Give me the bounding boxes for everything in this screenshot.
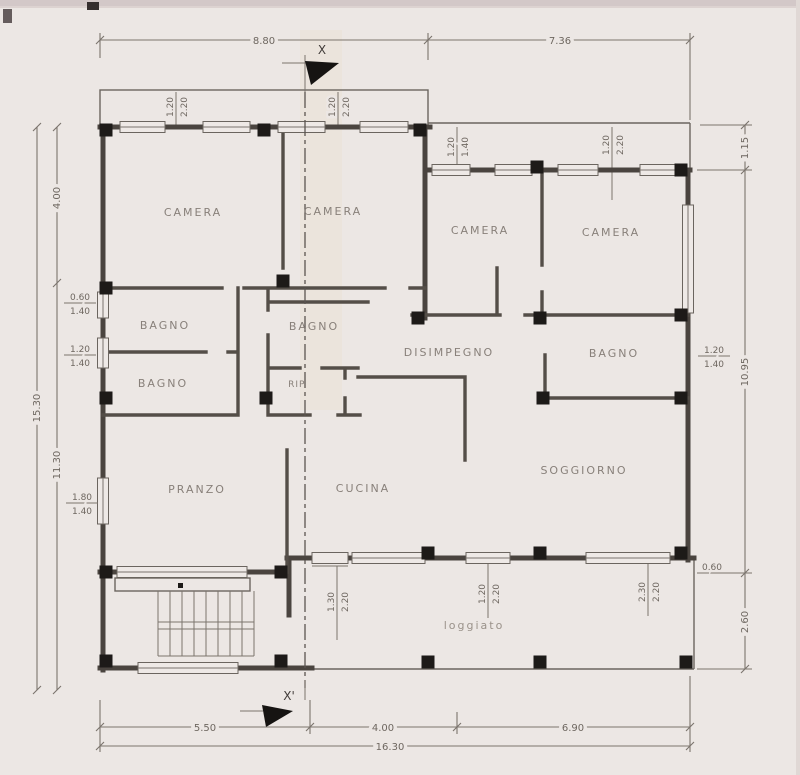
column xyxy=(100,655,113,668)
column xyxy=(422,547,435,560)
opening-height: 2.20 xyxy=(492,584,502,604)
room-label-bagno-mid: BAGNO xyxy=(289,320,339,333)
column xyxy=(534,547,547,560)
dim-right-loggia-width: 0.60 xyxy=(702,563,722,573)
scan-corner-mark xyxy=(3,9,12,23)
dimension-lines: 8.80 7.36 15.30 4.00 11.30 1.15 10.95 2.… xyxy=(32,33,752,753)
stair-treads xyxy=(158,591,254,656)
column xyxy=(534,656,547,669)
opening-width: 1.20 xyxy=(478,584,488,604)
staircase xyxy=(115,578,254,656)
opening-label-entry-door: 1.30 2.20 xyxy=(327,588,351,616)
dim-left-lower: 11.30 xyxy=(52,451,63,480)
dim-right-loggia-height: 2.60 xyxy=(740,611,751,633)
opening-height: 1.40 xyxy=(70,359,90,369)
opening-width: 1.20 xyxy=(166,97,176,117)
loggia-edge xyxy=(312,558,694,669)
room-label-camera-ne-left: CAMERA xyxy=(451,224,509,237)
opening-width: 1.30 xyxy=(327,592,337,612)
balcony-terrace-outlines xyxy=(100,90,694,669)
section-label-bottom: X' xyxy=(283,689,295,703)
column xyxy=(100,124,113,137)
opening-label-south-1: 1.20 2.20 xyxy=(478,580,502,608)
room-label-cucina: CUCINA xyxy=(336,482,390,495)
opening-label-left-3: 1.80 1.40 xyxy=(66,493,98,517)
dim-top-left: 8.80 xyxy=(253,36,275,47)
opening-label-south-2: 2.30 2.20 xyxy=(638,578,662,606)
column xyxy=(277,275,290,288)
dim-right-main: 10.95 xyxy=(740,358,751,387)
opening-width: 1.20 xyxy=(328,97,338,117)
opening-width: 1.20 xyxy=(70,345,90,355)
opening-label-terrace-2: 1.20 2.20 xyxy=(602,131,626,159)
column xyxy=(537,392,550,405)
scan-top-band-soft xyxy=(0,6,800,8)
dim-lines-bottom xyxy=(100,676,690,752)
opening-height: 1.40 xyxy=(72,507,92,517)
opening-width: 2.30 xyxy=(638,582,648,602)
stair-dot xyxy=(178,583,183,588)
room-label-bagno-e: BAGNO xyxy=(589,347,639,360)
room-label-disimpegno: DISIMPEGNO xyxy=(404,346,494,359)
scan-right-edge xyxy=(796,0,800,775)
room-label-loggiato: loggiato xyxy=(444,619,505,632)
room-label-camera-nw: CAMERA xyxy=(164,206,222,219)
column xyxy=(422,656,435,669)
column xyxy=(534,312,547,325)
dim-bottom-total: 16.30 xyxy=(376,742,405,753)
opening-height: 1.40 xyxy=(461,137,471,157)
opening-label-right-1: 1.20 1.40 xyxy=(698,346,730,370)
dim-top-right: 7.36 xyxy=(549,36,571,47)
room-label-soggiorno: SOGGIORNO xyxy=(540,464,627,477)
opening-height: 2.20 xyxy=(342,97,352,117)
room-label-camera-ne-right: CAMERA xyxy=(582,226,640,239)
column xyxy=(100,392,113,405)
opening-label-left-2: 1.20 1.40 xyxy=(64,345,96,369)
column xyxy=(275,655,288,668)
column xyxy=(680,656,693,669)
column xyxy=(414,124,427,137)
entry-door-opening xyxy=(312,553,348,564)
dim-left-upper: 4.00 xyxy=(52,187,63,209)
opening-width: 1.20 xyxy=(602,135,612,155)
opening-width: 1.80 xyxy=(72,493,92,503)
opening-label-balcony-1: 1.20 2.20 xyxy=(166,93,190,121)
opening-height: 1.40 xyxy=(70,307,90,317)
column xyxy=(258,124,271,137)
opening-width: 1.20 xyxy=(704,346,724,356)
floor-plan-drawing: X X' 8.80 7.36 15.30 4.00 11.30 1.15 10.… xyxy=(0,0,800,775)
column xyxy=(260,392,273,405)
scan-streak xyxy=(300,30,342,410)
opening-height: 2.20 xyxy=(341,592,351,612)
opening-height: 2.20 xyxy=(616,135,626,155)
dim-lines-right xyxy=(697,125,752,669)
section-marker-bottom-lines xyxy=(240,680,305,711)
dim-right-top: 1.15 xyxy=(740,137,751,159)
opening-label-terrace-1: 1.20 1.40 xyxy=(447,133,471,161)
section-arrow-bottom xyxy=(262,705,293,727)
dim-bottom-right: 6.90 xyxy=(562,723,584,734)
column xyxy=(675,309,688,322)
column xyxy=(675,547,688,560)
dim-bottom-left: 5.50 xyxy=(194,723,216,734)
opening-height: 2.20 xyxy=(652,582,662,602)
room-label-bagno-w-upper: BAGNO xyxy=(140,319,190,332)
column xyxy=(531,161,544,174)
opening-height: 2.20 xyxy=(180,97,190,117)
column xyxy=(675,164,688,177)
room-label-camera-n: CAMERA xyxy=(304,205,362,218)
scan-top-band xyxy=(0,0,800,6)
section-label-top: X xyxy=(318,43,326,57)
column xyxy=(675,392,688,405)
column xyxy=(100,282,113,295)
floor-plan-scan: X X' 8.80 7.36 15.30 4.00 11.30 1.15 10.… xyxy=(0,0,800,775)
dim-bottom-mid: 4.00 xyxy=(372,723,394,734)
opening-label-left-1: 0.60 1.40 xyxy=(64,293,96,317)
opening-width: 1.20 xyxy=(447,137,457,157)
column xyxy=(100,566,113,579)
column xyxy=(412,312,425,325)
opening-height: 1.40 xyxy=(704,360,724,370)
scan-edge-mark xyxy=(87,2,99,10)
opening-width: 0.60 xyxy=(70,293,90,303)
column xyxy=(275,566,288,579)
dim-left-total: 15.30 xyxy=(32,394,43,423)
room-label-rip: RIP. xyxy=(288,380,308,390)
room-label-pranzo: PRANZO xyxy=(168,483,226,496)
room-label-bagno-w-lower: BAGNO xyxy=(138,377,188,390)
